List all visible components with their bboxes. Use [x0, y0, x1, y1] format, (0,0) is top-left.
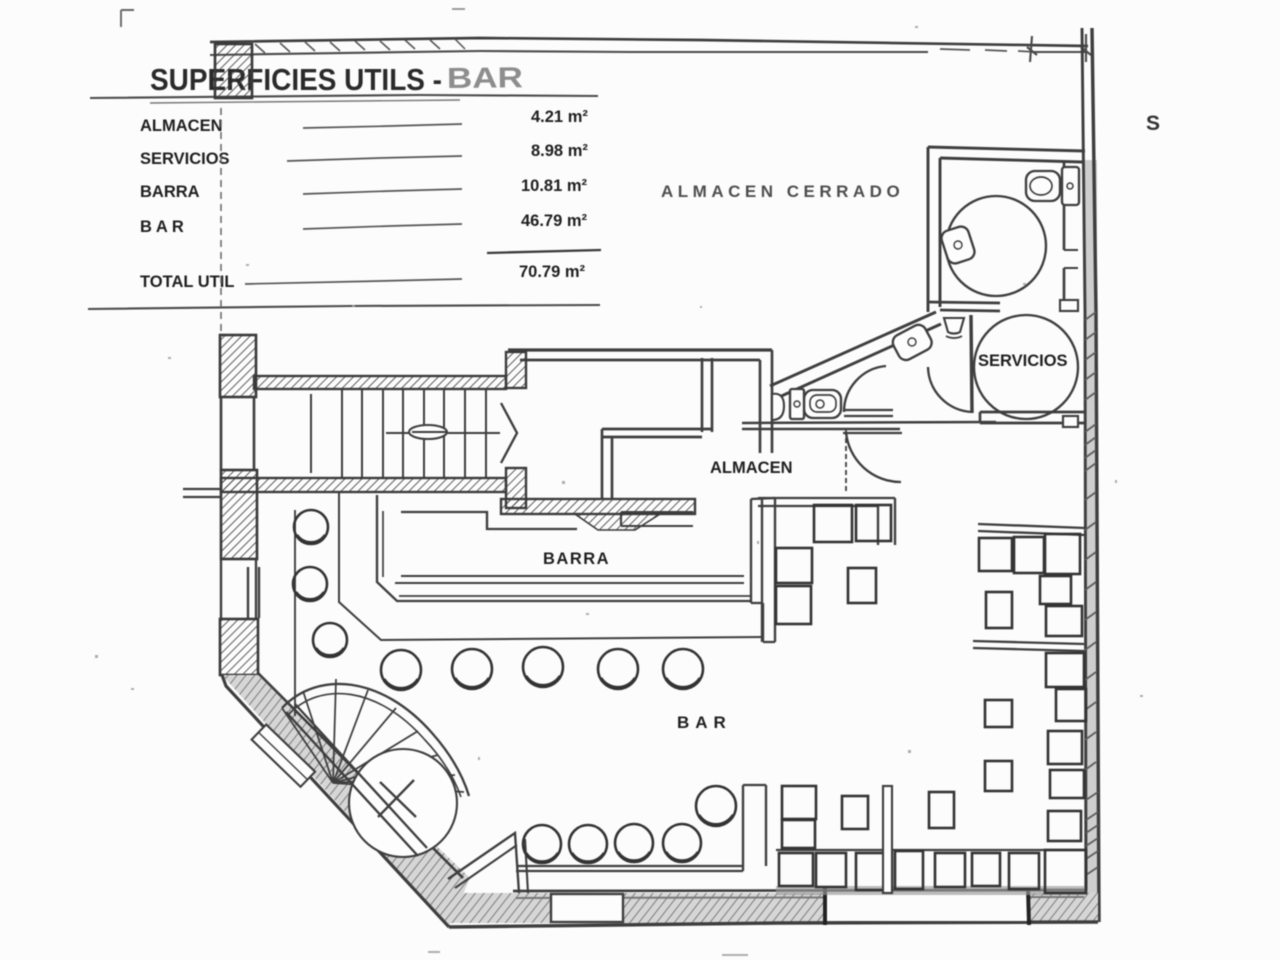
svg-text:70.79 m²: 70.79 m²: [519, 263, 586, 281]
svg-text:ALMACEN: ALMACEN: [140, 117, 223, 135]
svg-text:8.98 m²: 8.98 m²: [531, 142, 588, 160]
svg-text:ALMACEN CERRADO: ALMACEN CERRADO: [661, 182, 904, 201]
svg-text:SERVICIOS: SERVICIOS: [140, 150, 230, 168]
svg-text:46.79 m²: 46.79 m²: [521, 212, 588, 230]
svg-text:BAR: BAR: [677, 713, 732, 732]
svg-text:10.81 m²: 10.81 m²: [521, 177, 588, 195]
svg-text:SUPERFICIES UTILS -: SUPERFICIES UTILS -: [150, 62, 442, 97]
svg-text:BARRA: BARRA: [140, 183, 200, 201]
svg-text:SERVICIOS: SERVICIOS: [978, 352, 1068, 370]
svg-text:4.21 m²: 4.21 m²: [531, 108, 588, 126]
svg-text:BARRA: BARRA: [543, 550, 610, 568]
svg-text:ALMACEN: ALMACEN: [710, 459, 793, 477]
svg-text:S: S: [1146, 112, 1160, 135]
svg-text:BAR: BAR: [447, 62, 523, 95]
svg-text:BAR: BAR: [140, 218, 188, 236]
